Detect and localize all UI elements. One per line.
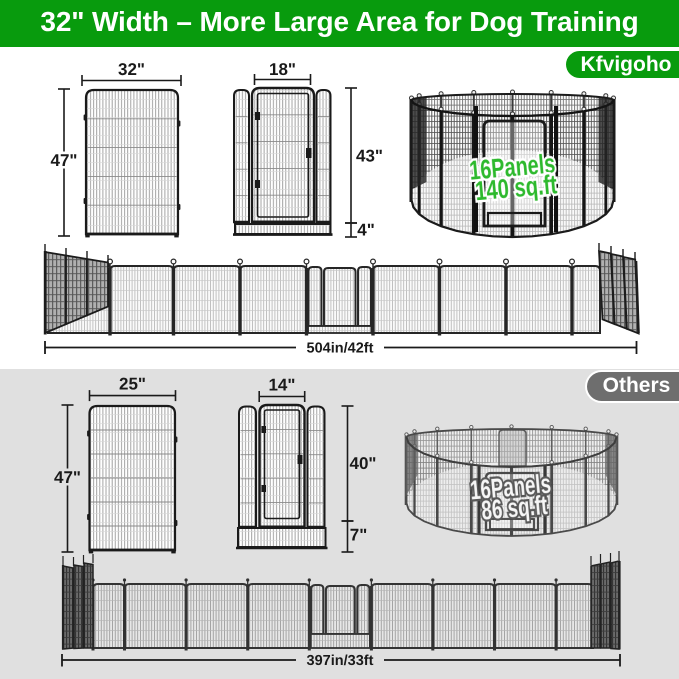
svg-text:47": 47" xyxy=(51,151,78,170)
svg-text:504in/42ft: 504in/42ft xyxy=(307,341,374,357)
svg-text:18": 18" xyxy=(269,60,296,79)
svg-text:397in/33ft: 397in/33ft xyxy=(307,653,374,669)
svg-text:25": 25" xyxy=(119,375,146,394)
svg-text:4": 4" xyxy=(357,221,375,240)
svg-text:32": 32" xyxy=(118,60,145,79)
svg-text:43": 43" xyxy=(356,147,383,166)
svg-text:7": 7" xyxy=(350,526,368,545)
svg-text:86 sq.ft: 86 sq.ft xyxy=(480,490,548,526)
svg-text:14": 14" xyxy=(268,376,295,395)
svg-text:40": 40" xyxy=(350,454,377,473)
svg-text:47": 47" xyxy=(54,468,81,487)
